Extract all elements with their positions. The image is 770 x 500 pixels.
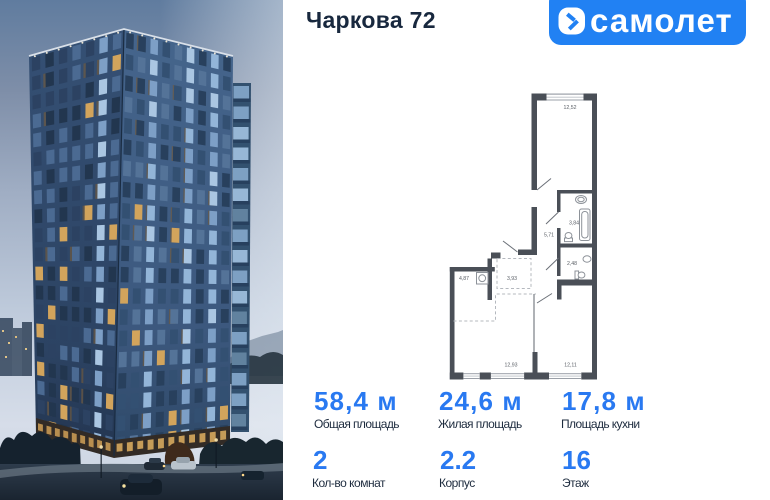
svg-text:12,52: 12,52 xyxy=(564,105,577,111)
svg-text:2,48: 2,48 xyxy=(567,261,577,267)
svg-text:4,87: 4,87 xyxy=(459,276,469,282)
svg-text:12,93: 12,93 xyxy=(505,363,518,369)
svg-text:5,71: 5,71 xyxy=(544,233,554,239)
svg-text:12,11: 12,11 xyxy=(564,363,577,369)
svg-text:3,93: 3,93 xyxy=(507,276,517,282)
svg-text:3,84: 3,84 xyxy=(569,221,579,227)
